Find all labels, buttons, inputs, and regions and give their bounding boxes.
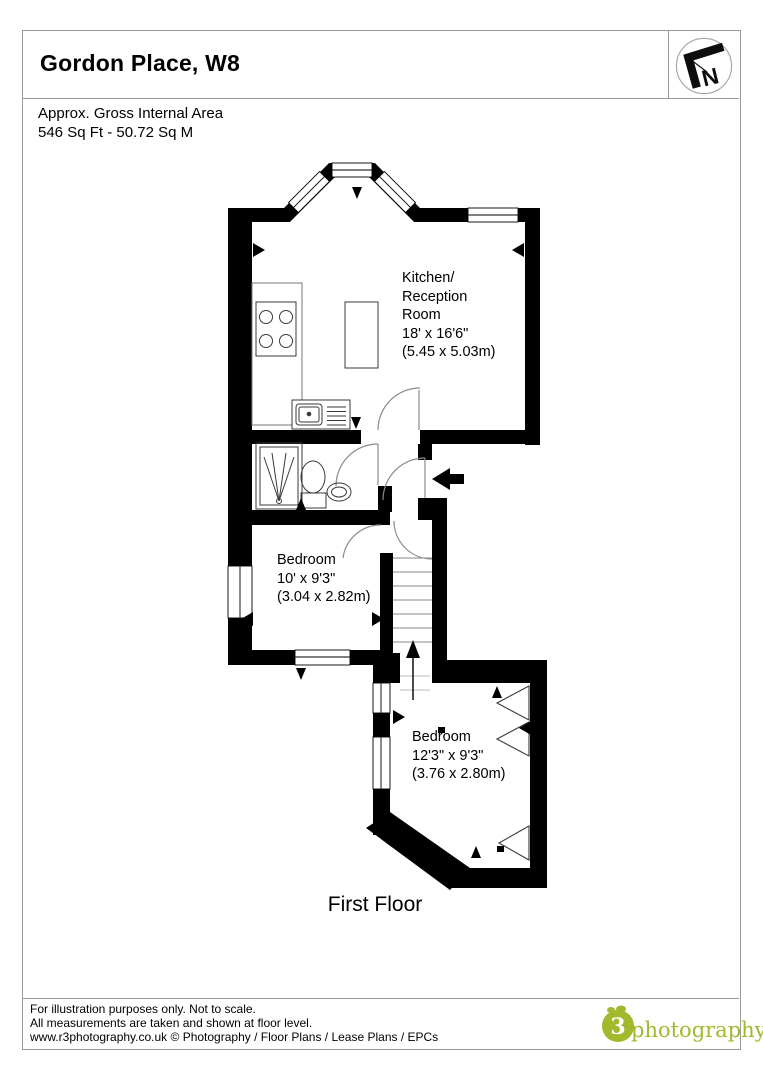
hob-icon — [256, 302, 296, 356]
footer-line-3: www.r3photography.co.uk © Photography / … — [30, 1030, 438, 1044]
room-dimensions-metric: (3.76 x 2.80m) — [412, 765, 506, 784]
room-dimensions-metric: (3.04 x 2.82m) — [277, 588, 371, 607]
toilet-icon — [301, 461, 326, 508]
svg-text:3: 3 — [610, 1014, 625, 1040]
floor-name: First Floor — [280, 893, 470, 917]
room-name: Kitchen/ Reception Room — [402, 269, 496, 325]
logo-wordmark: photography — [631, 1018, 763, 1042]
footer-disclaimer: For illustration purposes only. Not to s… — [30, 1002, 438, 1044]
sink-icon — [292, 400, 350, 429]
bay-window-right — [374, 171, 415, 212]
room-dimensions-imperial: 18' x 16'6" — [402, 325, 496, 344]
footer-line-2: All measurements are taken and shown at … — [30, 1016, 438, 1030]
bedroom1-bottom-window — [295, 650, 350, 665]
room-dimensions-imperial: 10' x 9'3" — [277, 570, 371, 589]
r3photography-logo: 3 photography — [598, 1004, 763, 1044]
kitchen-label: Kitchen/ Reception Room 18' x 16'6" (5.4… — [402, 269, 496, 362]
room-name: Bedroom — [412, 728, 506, 747]
bedroom2-window-upper — [373, 683, 390, 713]
stairs-up-arrow — [406, 640, 420, 700]
shower-icon — [256, 443, 302, 509]
footer-line-1: For illustration purposes only. Not to s… — [30, 1002, 438, 1016]
bedroom2-window-lower — [373, 737, 390, 789]
kitchen-island — [345, 302, 378, 368]
basin-icon — [327, 483, 351, 501]
floorplan-page: Gordon Place, W8 Approx. Gross Internal … — [0, 0, 763, 1080]
room-dimensions-imperial: 12'3" x 9'3" — [412, 747, 506, 766]
floorplan-drawing — [0, 0, 763, 1080]
room-dimensions-metric: (5.45 x 5.03m) — [402, 343, 496, 362]
bay-window-left — [288, 171, 329, 212]
kitchen-fixtures — [252, 283, 378, 429]
room-name: Bedroom — [277, 551, 371, 570]
bedroom2-label: Bedroom 12'3" x 9'3" (3.76 x 2.80m) — [412, 728, 506, 784]
entrance-arrow-icon — [432, 468, 464, 490]
windows — [228, 163, 518, 789]
bedroom1-label: Bedroom 10' x 9'3" (3.04 x 2.82m) — [277, 551, 371, 607]
